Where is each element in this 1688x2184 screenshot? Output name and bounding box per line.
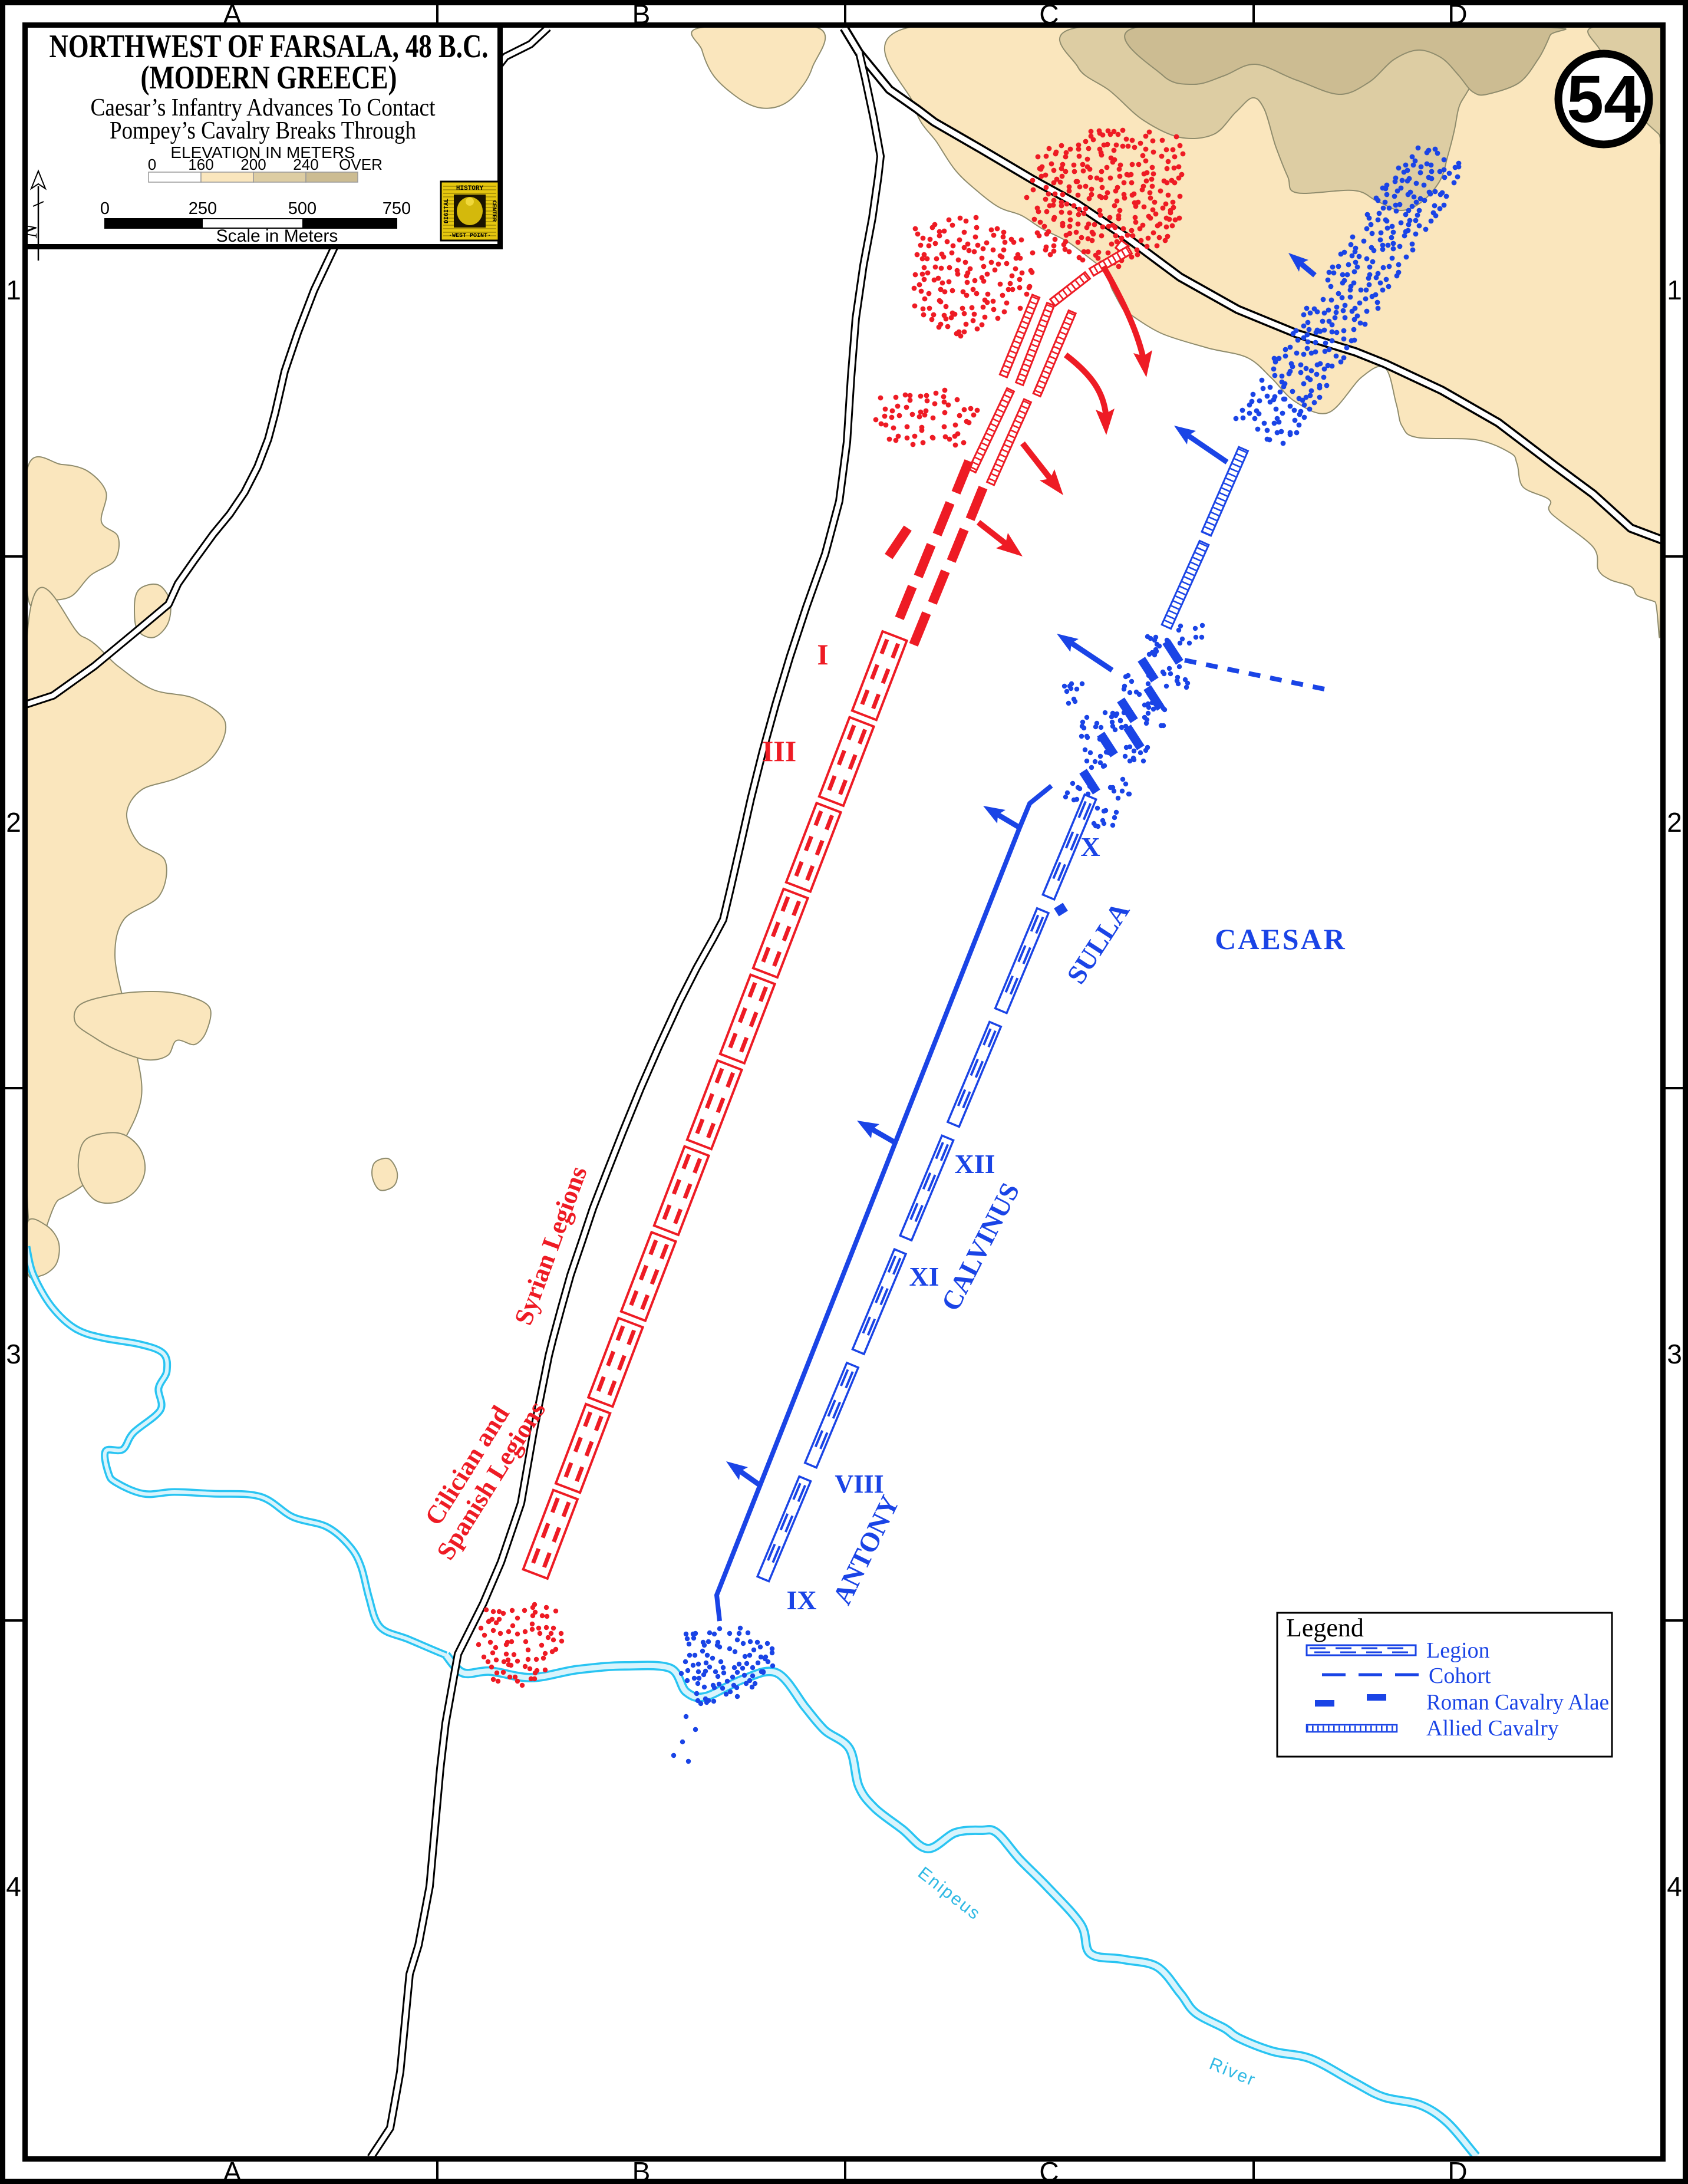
svg-text:·WEST POINT·: ·WEST POINT· [449, 233, 491, 239]
svg-text:D: D [1448, 0, 1467, 29]
svg-text:Cohort: Cohort [1429, 1663, 1491, 1688]
svg-text:A: A [223, 2156, 242, 2184]
svg-text:750: 750 [383, 199, 411, 218]
svg-text:3: 3 [1667, 1339, 1682, 1369]
svg-text:200: 200 [240, 156, 266, 173]
svg-text:Scale in Meters: Scale in Meters [216, 226, 338, 246]
svg-text:B: B [632, 0, 651, 29]
svg-text:240: 240 [293, 156, 318, 173]
svg-text:4: 4 [1667, 1871, 1682, 1902]
svg-text:4: 4 [6, 1871, 21, 1902]
svg-text:Allied Cavalry: Allied Cavalry [1426, 1716, 1559, 1741]
svg-text:Legion: Legion [1426, 1638, 1490, 1663]
svg-text:0: 0 [100, 199, 110, 218]
svg-text:IX: IX [786, 1585, 816, 1615]
svg-text:Pompey’s Cavalry Breaks Throug: Pompey’s Cavalry Breaks Through [110, 117, 416, 144]
svg-text:1: 1 [6, 275, 21, 305]
svg-text:(MODERN GREECE): (MODERN GREECE) [141, 60, 397, 96]
svg-text:250: 250 [189, 199, 217, 218]
svg-text:I: I [817, 638, 828, 671]
svg-text:3: 3 [6, 1339, 21, 1369]
svg-text:HISTORY: HISTORY [456, 185, 484, 192]
svg-text:X: X [1080, 832, 1100, 862]
svg-text:Legend: Legend [1286, 1613, 1364, 1642]
svg-text:D: D [1448, 2156, 1467, 2184]
svg-text:160: 160 [188, 156, 213, 173]
svg-text:OVER: OVER [339, 156, 383, 173]
svg-text:III: III [762, 734, 796, 767]
svg-text:1: 1 [1667, 275, 1682, 305]
svg-text:C: C [1039, 0, 1059, 29]
svg-text:2: 2 [1667, 807, 1682, 838]
svg-text:XII: XII [954, 1149, 995, 1179]
svg-text:2: 2 [6, 807, 21, 838]
svg-text:XI: XI [909, 1261, 939, 1292]
svg-text:0: 0 [148, 156, 156, 173]
svg-text:N: N [18, 223, 41, 239]
svg-text:DIGITAL: DIGITAL [444, 199, 450, 223]
svg-text:54: 54 [1567, 62, 1641, 136]
svg-text:C: C [1039, 2156, 1059, 2184]
svg-text:CAESAR: CAESAR [1215, 923, 1347, 956]
svg-text:500: 500 [288, 199, 316, 218]
svg-text:Roman Cavalry Alae: Roman Cavalry Alae [1426, 1690, 1609, 1715]
svg-text:CENTER: CENTER [490, 200, 497, 222]
svg-text:B: B [632, 2156, 651, 2184]
